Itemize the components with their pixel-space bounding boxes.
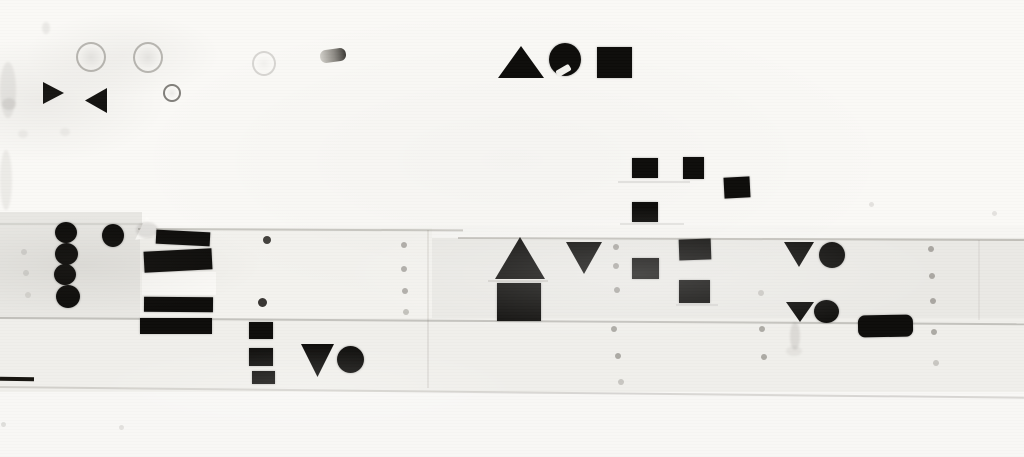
square-underline-2	[620, 223, 684, 225]
black-square	[723, 176, 750, 198]
wall-bottom-board	[0, 392, 1024, 457]
wall-bright-strip	[142, 272, 216, 295]
black-stripe	[144, 297, 213, 313]
edge-smudge	[0, 150, 12, 210]
faint-dot	[869, 202, 874, 207]
black-circle	[55, 243, 78, 265]
rivet-dot	[758, 290, 764, 296]
black-square	[497, 283, 541, 321]
black-rounded-bar	[858, 315, 913, 338]
black-square	[683, 157, 704, 179]
rivet-dot	[761, 354, 767, 360]
black-circle	[819, 242, 845, 268]
black-square	[679, 280, 710, 303]
black-circle	[54, 264, 76, 285]
drip-streak	[786, 346, 802, 356]
rivet-dot	[933, 360, 939, 366]
board-seam-vertical-2	[978, 240, 980, 320]
small-smudge	[18, 130, 28, 138]
rivet-dot	[928, 246, 934, 252]
grommet-ring	[252, 51, 276, 76]
board-seam-top-left	[0, 223, 150, 225]
small-smudge	[42, 22, 50, 34]
faint-dot	[119, 425, 124, 430]
black-circle	[102, 224, 124, 247]
black-square	[632, 202, 658, 222]
square-underline-3	[676, 304, 718, 306]
grommet-ring	[76, 42, 106, 72]
faint-dot	[23, 270, 29, 276]
triangle-base-shadow	[488, 280, 548, 282]
rivet-dot	[929, 273, 935, 279]
black-square	[249, 322, 273, 339]
square-underline-1	[618, 181, 690, 183]
black-square	[252, 371, 275, 384]
rivet-dot	[615, 353, 621, 359]
small-eyelet-ring	[163, 84, 181, 102]
rivet-dot	[402, 288, 408, 294]
rivet-dot	[931, 329, 937, 335]
small-black-dot	[263, 236, 271, 244]
rivet-dot	[613, 244, 619, 250]
black-square	[679, 238, 712, 260]
black-circle	[55, 222, 77, 243]
black-stripe	[140, 318, 212, 334]
black-circle	[814, 300, 839, 323]
black-circle	[56, 285, 80, 308]
rivet-dot	[759, 326, 765, 332]
rivet-dot	[401, 242, 407, 248]
faint-dot	[21, 249, 27, 255]
photo-canvas	[0, 0, 1024, 457]
edge-smudge	[2, 98, 16, 110]
faint-dot	[1, 422, 6, 427]
corner-smudge	[136, 222, 158, 238]
faint-dot	[992, 211, 997, 216]
wall-top-board	[0, 0, 1024, 226]
black-square	[249, 348, 273, 366]
rivet-dot	[614, 287, 620, 293]
board-seam-vertical-1	[427, 230, 429, 388]
rivet-dot	[403, 309, 409, 315]
rivet-dot	[613, 263, 619, 269]
small-smudge	[60, 128, 70, 136]
black-square	[632, 158, 658, 178]
edge-dark-dash	[0, 377, 34, 382]
black-stripe	[156, 230, 211, 247]
rivet-dot	[930, 298, 936, 304]
grommet-ring	[133, 42, 163, 73]
black-square	[597, 47, 632, 78]
rivet-dot	[618, 379, 624, 385]
rivet-dot	[611, 326, 617, 332]
black-circle	[337, 346, 364, 373]
rivet-dot	[401, 266, 407, 272]
black-stripe	[143, 248, 212, 273]
faint-dot	[25, 292, 31, 298]
small-black-dot	[258, 298, 267, 307]
black-square	[632, 258, 659, 279]
